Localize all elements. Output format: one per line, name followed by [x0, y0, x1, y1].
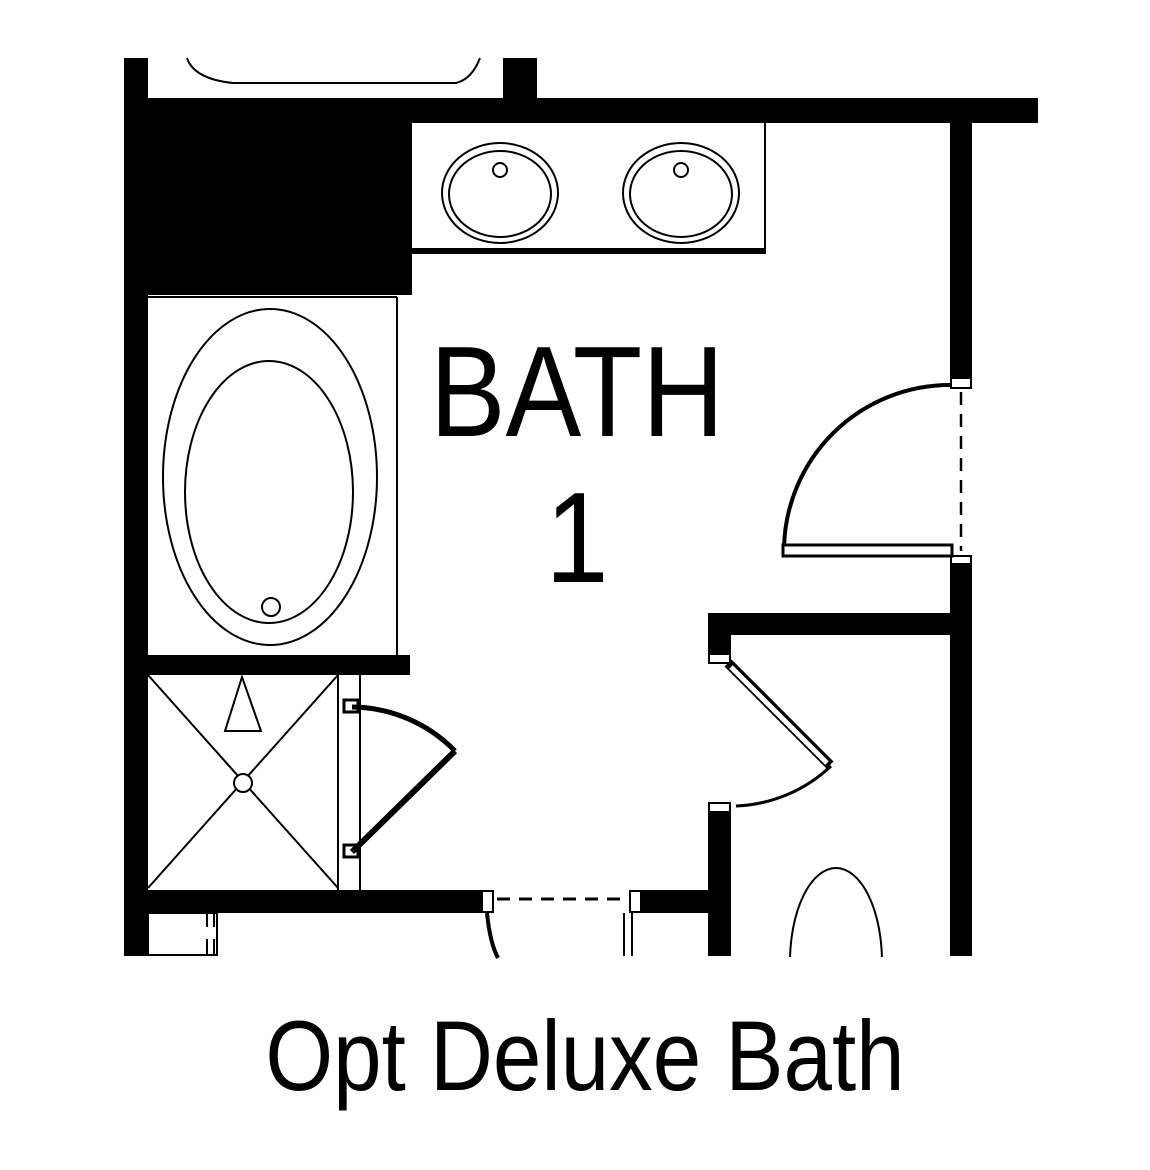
- room-label: BATH 1: [401, 319, 753, 611]
- shower-top-wall: [124, 655, 410, 675]
- right-wall-lower: [950, 561, 972, 956]
- linen-cabinet: [148, 913, 217, 955]
- sink-left: [442, 143, 558, 243]
- entry-door-swing-arc: [784, 385, 950, 549]
- shower-head-triangle: [225, 677, 261, 731]
- floor-plan: BATH 1 Opt Deluxe Bath: [0, 0, 1150, 1170]
- bottom-wall-left: [124, 890, 483, 913]
- bottom-opening: [487, 899, 632, 958]
- shower-drain: [234, 774, 252, 792]
- tub-inner-rim: [185, 361, 353, 623]
- shower: [148, 675, 455, 890]
- adjacent-tub-edge: [187, 58, 480, 83]
- jamb-right-door-bottom: [951, 556, 971, 564]
- top-wall-stub: [503, 58, 537, 99]
- bathtub: [148, 297, 397, 655]
- jamb-wc-door-bottom: [709, 803, 730, 812]
- bottom-wall-right: [640, 890, 731, 913]
- wc-wall-lower: [708, 811, 731, 956]
- shower-door-panel: [352, 751, 455, 852]
- sink-right-outer: [623, 143, 739, 243]
- jamb-bottom-opening-left: [482, 891, 493, 912]
- wc-door-leaf-fill: [731, 667, 827, 763]
- bottom-door-swing-arc: [487, 913, 498, 958]
- tub-outer-rim: [163, 309, 377, 645]
- solid-block: [124, 98, 412, 295]
- shower-door-swing-arc: [352, 707, 455, 751]
- right-wall-upper: [950, 123, 972, 379]
- sink-left-outer: [442, 143, 558, 243]
- jamb-bottom-opening-right: [630, 891, 641, 912]
- sink-right: [623, 143, 739, 243]
- room-label-line1: BATH: [401, 319, 753, 465]
- wc-door-swing-arc: [736, 766, 831, 806]
- entry-door: [783, 385, 961, 556]
- wc-wall-upper: [708, 613, 731, 655]
- wc-top-wall: [708, 613, 950, 635]
- jamb-right-door-top: [951, 378, 971, 388]
- plan-caption: Opt Deluxe Bath: [233, 999, 937, 1113]
- wc-door: [728, 663, 831, 806]
- room-label-line2: 1: [401, 465, 753, 611]
- sink-right-faucet: [674, 163, 688, 177]
- jamb-wc-door-top: [709, 654, 730, 663]
- sink-left-faucet: [493, 163, 507, 177]
- linen-cabinet-divider: [207, 913, 214, 955]
- tub-drain: [262, 598, 280, 616]
- vanity: [412, 123, 766, 251]
- entry-door-leaf: [783, 545, 952, 556]
